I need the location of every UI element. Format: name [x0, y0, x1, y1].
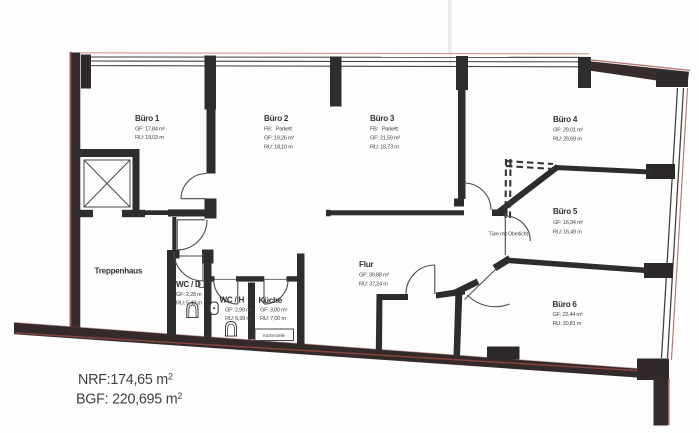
svg-text:GF: 29,01 m²: GF: 29,01 m²: [553, 128, 583, 134]
svg-text:RU: 5,43 m: RU: 5,43 m: [176, 301, 202, 307]
svg-text:Büro 4: Büro 4: [553, 115, 578, 124]
svg-text:Flur: Flur: [359, 260, 374, 269]
svg-text:Türe mit Oberlicht: Türe mit Oberlicht: [489, 232, 529, 238]
svg-text:Büro 5: Büro 5: [553, 207, 578, 216]
svg-text:Büro 6: Büro 6: [553, 300, 578, 309]
svg-text:GF: 22,44 m²: GF: 22,44 m²: [553, 312, 583, 318]
svg-text:GF: 39,88 m²: GF: 39,88 m²: [359, 273, 389, 279]
svg-text:BGF: 220,695 m2: BGF: 220,695 m2: [76, 391, 182, 407]
svg-text:GF: 17,84 m²: GF: 17,84 m²: [135, 127, 165, 133]
svg-text:GF: 2,28 m: GF: 2,28 m: [176, 292, 202, 298]
svg-text:WC / H: WC / H: [220, 296, 245, 305]
svg-text:WC / D: WC / D: [176, 280, 201, 289]
svg-text:Küchenzeile: Küchenzeile: [263, 333, 285, 338]
svg-text:RU: 6,99 m: RU: 6,99 m: [225, 316, 251, 322]
svg-text:RU: 18,73 m: RU: 18,73 m: [370, 145, 399, 151]
svg-text:GF: 2,99 m²: GF: 2,99 m²: [225, 308, 252, 314]
svg-text:RU: 20,81 m: RU: 20,81 m: [553, 321, 582, 327]
svg-text:RU: 18,10 m: RU: 18,10 m: [264, 145, 293, 151]
svg-text:RU: 7,00 m: RU: 7,00 m: [260, 316, 286, 322]
svg-text:GF: 19,26 m²: GF: 19,26 m²: [264, 136, 294, 142]
svg-text:Treppenhaus: Treppenhaus: [95, 267, 143, 276]
svg-text:RU: 19,03 m: RU: 19,03 m: [135, 135, 164, 141]
svg-text:NRF:174,65 m2: NRF:174,65 m2: [78, 372, 173, 388]
svg-text:GF: 3,00 m²: GF: 3,00 m²: [260, 308, 287, 314]
svg-text:RU: 16,49 m: RU: 16,49 m: [553, 230, 582, 236]
svg-text:GF: 21,59 m²: GF: 21,59 m²: [370, 136, 400, 142]
svg-text:GF: 16,34 m²: GF: 16,34 m²: [553, 220, 583, 226]
svg-text:Küche: Küche: [259, 296, 283, 305]
svg-text:Büro 1: Büro 1: [135, 114, 160, 123]
svg-text:Büro 3: Büro 3: [370, 114, 395, 123]
svg-text:Büro 2: Büro 2: [264, 114, 289, 123]
svg-text:FB: Parkett: FB: Parkett: [264, 127, 292, 133]
svg-text:FB: Parkett: FB: Parkett: [370, 127, 398, 133]
svg-text:RU: 25,69 m: RU: 25,69 m: [553, 137, 582, 143]
svg-text:RU: 37,24 m: RU: 37,24 m: [359, 282, 388, 288]
